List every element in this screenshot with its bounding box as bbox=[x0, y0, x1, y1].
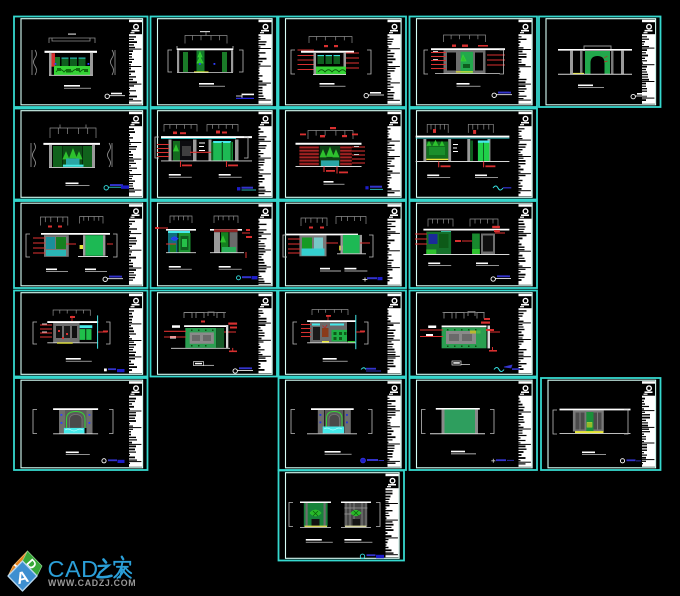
svg-text:WWW.CADZJ.COM: WWW.CADZJ.COM bbox=[48, 578, 136, 588]
